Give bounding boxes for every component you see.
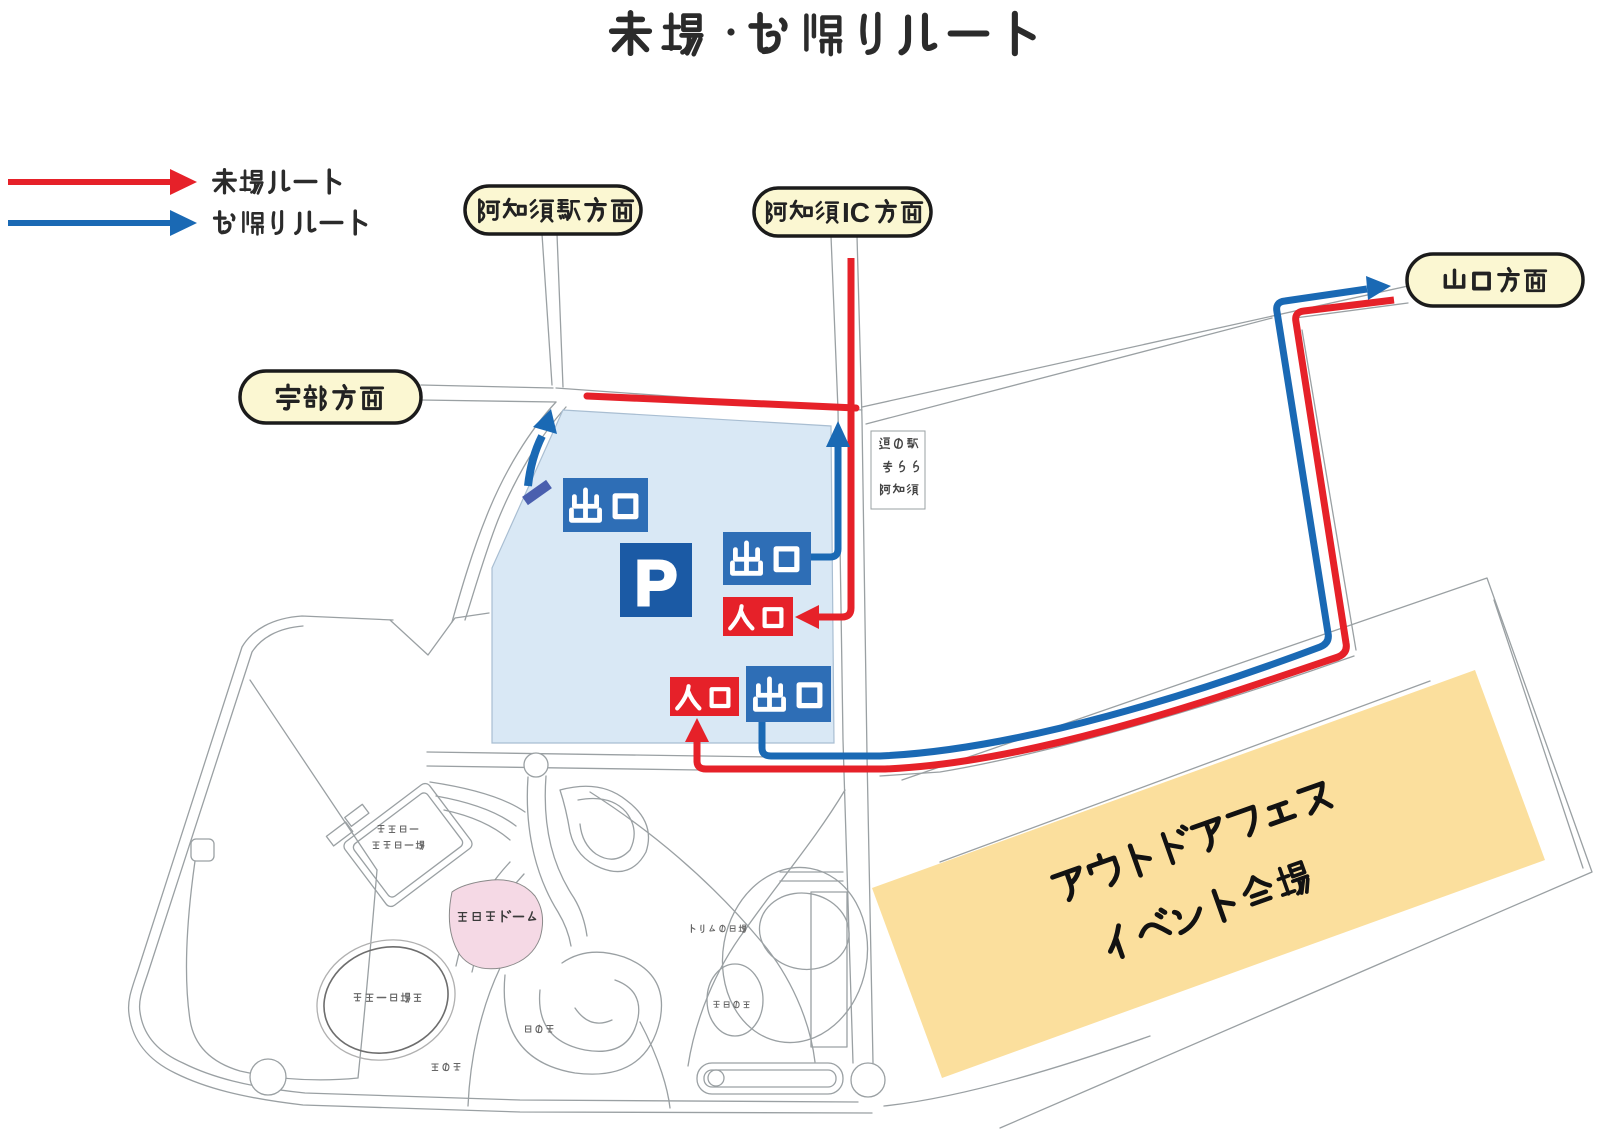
svg-text:IC: IC [842,197,870,228]
svg-text:P: P [635,547,678,619]
